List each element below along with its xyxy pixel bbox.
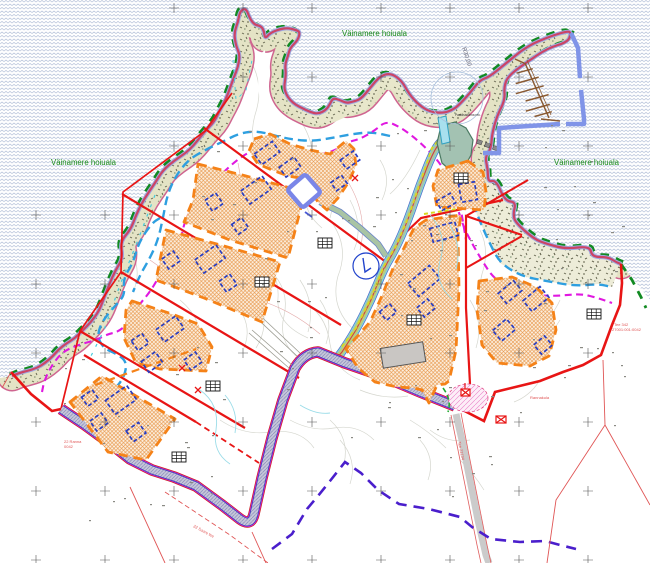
svg-text:27001:001:0042: 27001:001:0042 bbox=[612, 327, 642, 332]
svg-text:Väinamere hoiuala: Väinamere hoiuala bbox=[51, 158, 117, 167]
svg-text:Väinamere hoiuala: Väinamere hoiuala bbox=[342, 29, 408, 38]
svg-text:0042: 0042 bbox=[64, 444, 74, 449]
svg-text:Väinamere hoiuala: Väinamere hoiuala bbox=[554, 158, 620, 167]
svg-text:Paadisadama rek.: Paadisadama rek. bbox=[455, 113, 481, 117]
svg-text:Rannakula: Rannakula bbox=[530, 395, 550, 400]
